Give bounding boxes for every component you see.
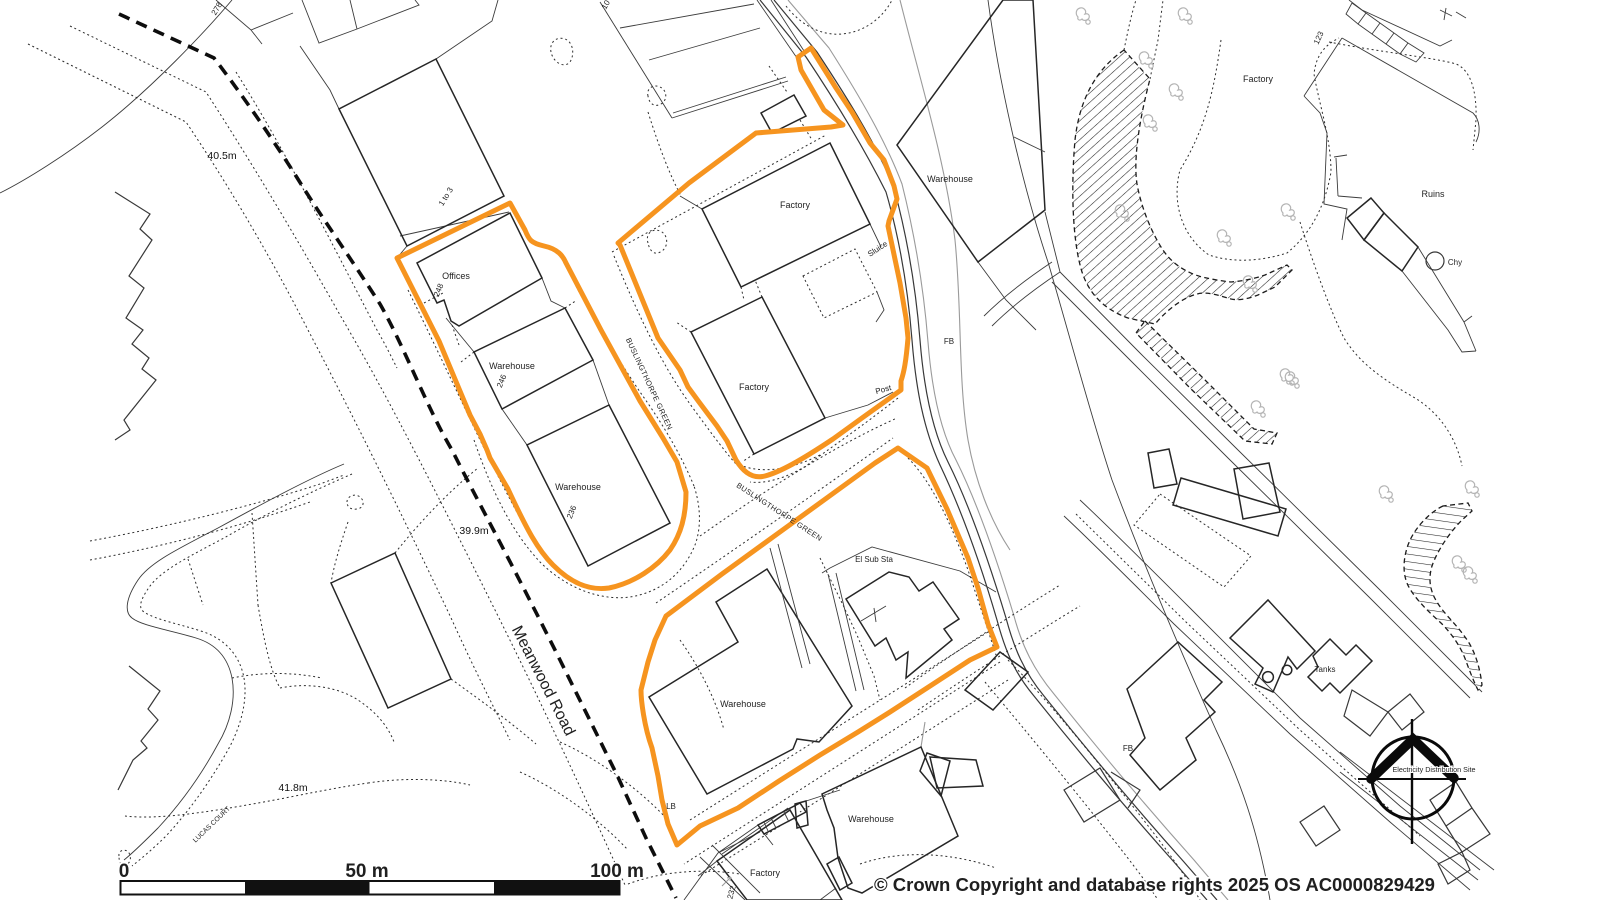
svg-text:Chy: Chy xyxy=(1448,258,1462,267)
svg-text:0: 0 xyxy=(119,861,130,882)
svg-text:100 m: 100 m xyxy=(590,861,644,882)
svg-text:El Sub Sta: El Sub Sta xyxy=(855,555,893,564)
svg-text:41.8m: 41.8m xyxy=(278,782,307,794)
svg-text:Factory: Factory xyxy=(780,200,811,210)
svg-text:Warehouse: Warehouse xyxy=(927,174,973,184)
svg-text:FB: FB xyxy=(1123,744,1133,753)
svg-text:Warehouse: Warehouse xyxy=(555,482,601,492)
svg-text:Electricity Distribution Site: Electricity Distribution Site xyxy=(1392,765,1475,774)
svg-text:Factory: Factory xyxy=(739,382,770,392)
svg-text:Warehouse: Warehouse xyxy=(489,361,535,371)
svg-text:Offices: Offices xyxy=(442,271,470,281)
svg-text:39.9m: 39.9m xyxy=(459,525,488,537)
svg-text:Tanks: Tanks xyxy=(1315,665,1336,674)
svg-text:40.5m: 40.5m xyxy=(207,150,236,162)
svg-text:Warehouse: Warehouse xyxy=(848,814,894,824)
svg-text:50 m: 50 m xyxy=(345,861,388,882)
svg-text:FB: FB xyxy=(944,337,954,346)
svg-text:© Crown Copyright and database: © Crown Copyright and database rights 20… xyxy=(874,874,1435,895)
svg-text:LB: LB xyxy=(666,802,676,811)
svg-text:Factory: Factory xyxy=(1243,74,1274,84)
svg-text:Ruins: Ruins xyxy=(1421,189,1445,199)
svg-text:Factory: Factory xyxy=(750,868,781,878)
svg-text:Warehouse: Warehouse xyxy=(720,699,766,709)
